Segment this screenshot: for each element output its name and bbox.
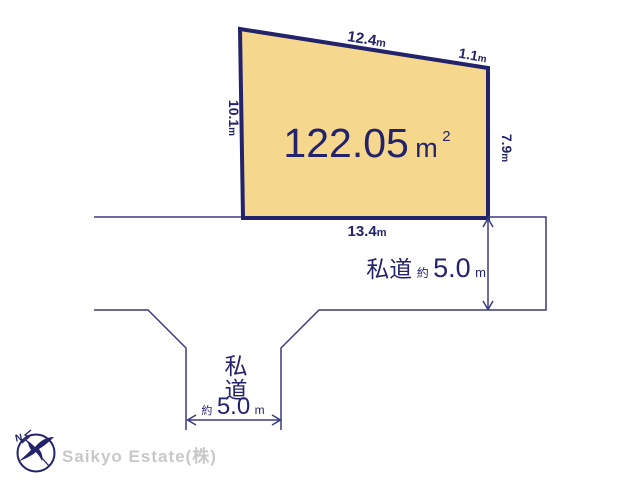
right-road-label: 私道 約 5.0 m [366, 253, 486, 283]
compass-north-logo: N [14, 430, 54, 472]
bottom-road-kanji-1: 私 [225, 353, 248, 379]
bottom-road-unit: m [255, 403, 265, 417]
plot-drawing-svg: 122.05 m 2 12.4m 1.1m 10.1m 7.9m 13.4m 私… [0, 0, 640, 480]
company-name: Saikyo Estate(株) [62, 446, 217, 466]
dimension-right-edge: 7.9m [499, 134, 515, 162]
dimension-left-edge: 10.1m [226, 100, 242, 136]
parcel-area-value: 122.05 [283, 120, 408, 166]
dimension-bottom-edge: 13.4m [348, 223, 387, 240]
bottom-road-approx: 約 [201, 403, 212, 417]
right-road-approx: 約 [417, 265, 429, 280]
compass-n-label: N [14, 432, 23, 444]
parcel-area-unit: m [415, 133, 438, 163]
right-road-width-arrow [483, 219, 493, 310]
bottom-road-width-label: 約 5.0 m [201, 393, 264, 420]
right-road-value: 5.0 [433, 253, 471, 283]
right-road-unit: m [475, 265, 486, 280]
bottom-road-value: 5.0 [217, 393, 250, 420]
land-plot-diagram: 122.05 m 2 12.4m 1.1m 10.1m 7.9m 13.4m 私… [0, 0, 640, 480]
road-line-right-section [281, 217, 546, 430]
road-outline-lines [94, 217, 546, 430]
right-road-kanji: 私道 [366, 256, 412, 282]
road-line-left-section [94, 310, 186, 430]
parcel-area-unit-sup: 2 [442, 128, 450, 145]
